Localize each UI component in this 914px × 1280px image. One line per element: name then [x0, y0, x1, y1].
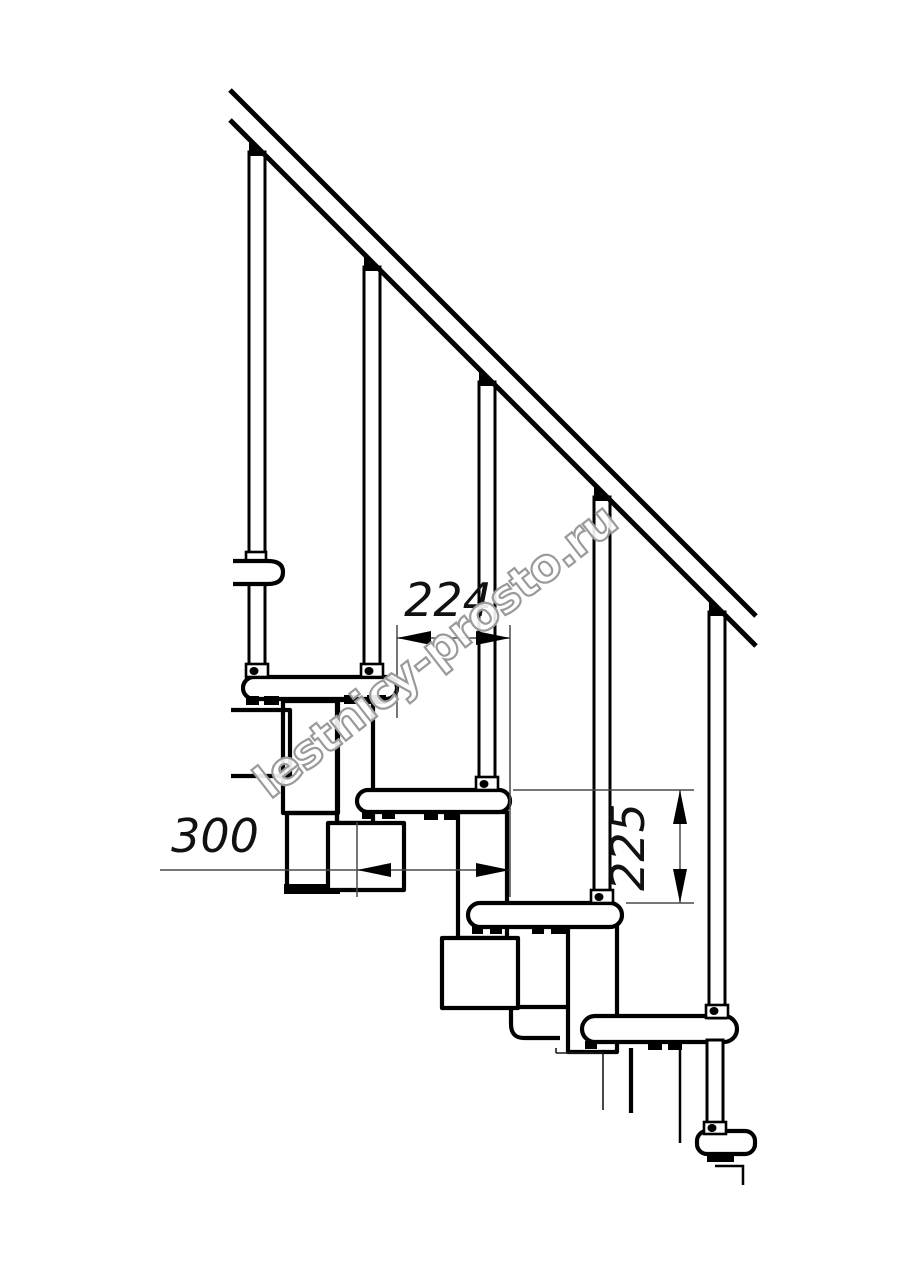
staircase-technical-drawing: 224 300 225 lestnicy-prosto.ru — [0, 0, 914, 1280]
bottom-cut-step — [715, 1166, 743, 1185]
tread-4 — [582, 1016, 737, 1042]
baluster-5 — [704, 612, 728, 1134]
module-box-2 — [442, 938, 518, 1008]
break-lines — [556, 1048, 603, 1110]
dimension-riser: 225 — [513, 790, 694, 903]
watermark: lestnicy-prosto.ru — [244, 493, 627, 809]
module-box-3 — [511, 1007, 567, 1038]
dimension-riser-label: 225 — [601, 803, 655, 891]
dimension-depth-label: 300 — [171, 809, 259, 863]
tread-2 — [357, 790, 510, 812]
arrow-down-icon — [673, 869, 687, 903]
tread-3 — [468, 903, 622, 927]
module-box-1 — [328, 823, 404, 890]
arrow-up-icon — [673, 790, 687, 824]
baluster-1 — [246, 152, 268, 677]
baluster-2 — [361, 267, 383, 677]
drawing-canvas: 224 300 225 lestnicy-prosto.ru — [0, 0, 914, 1280]
baluster-5-lower — [707, 1040, 723, 1125]
landing-bracket — [233, 552, 283, 584]
